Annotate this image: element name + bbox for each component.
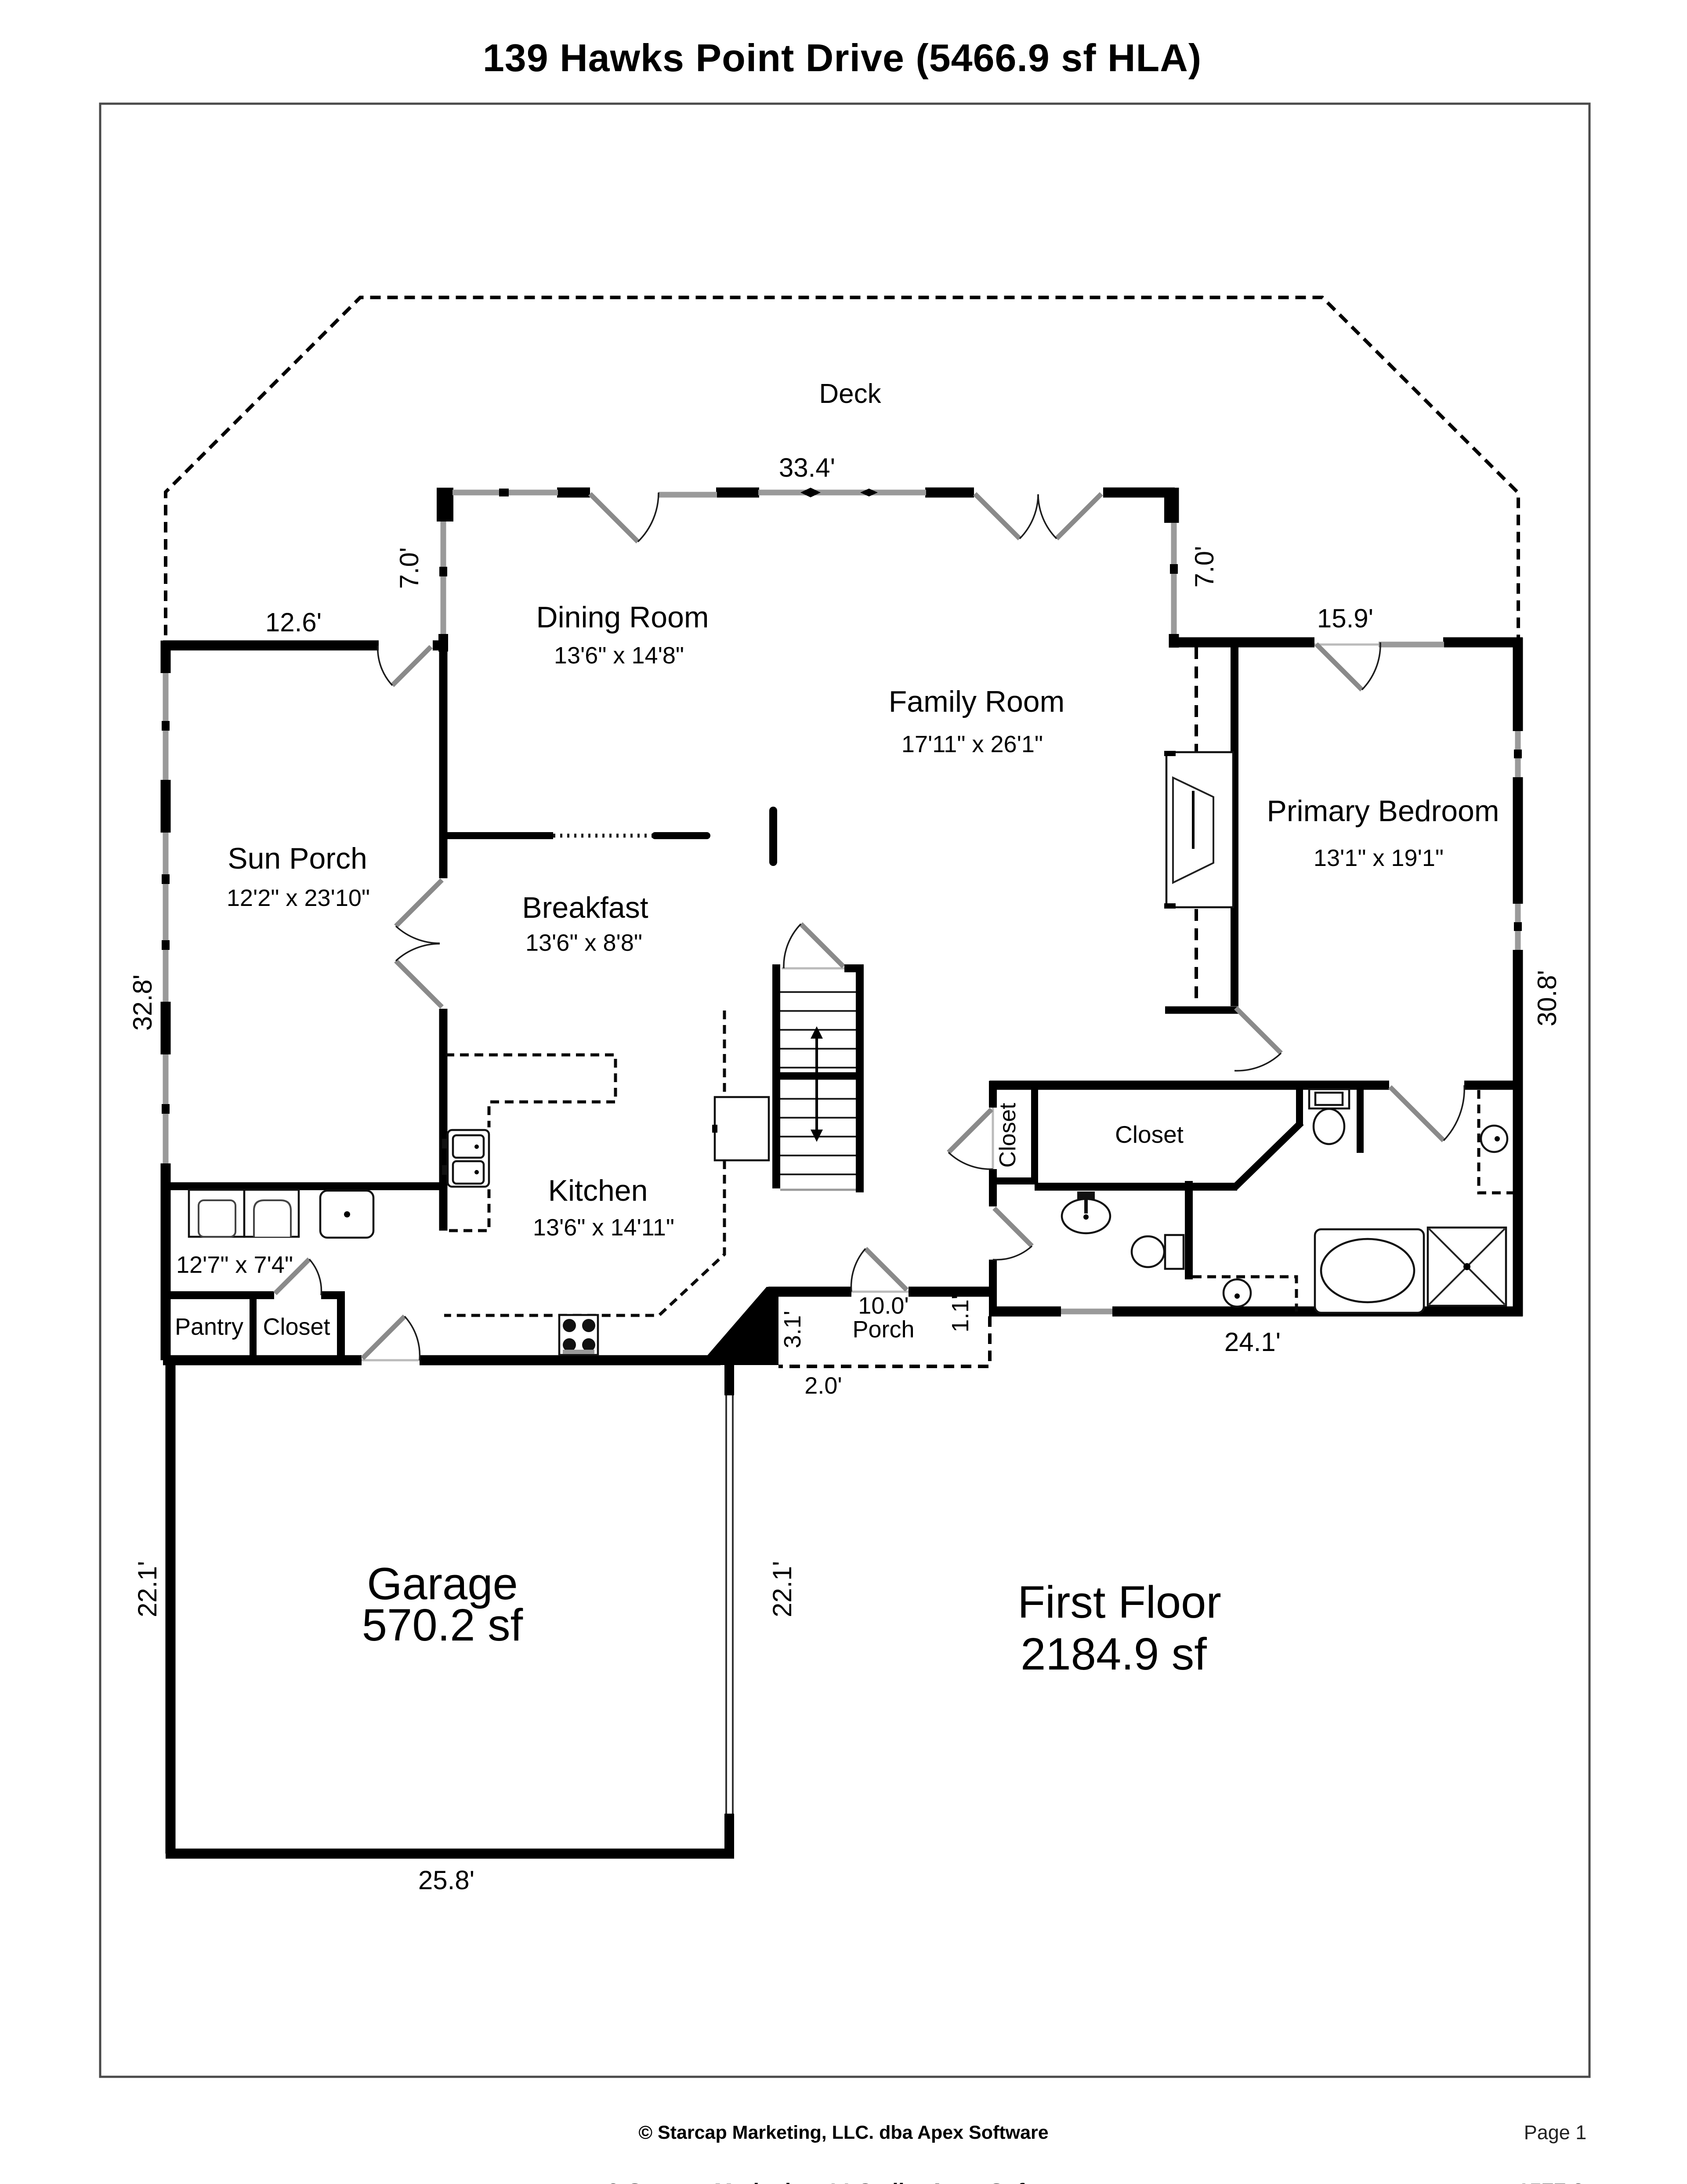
svg-text:7.0': 7.0' [395, 547, 424, 589]
svg-text:33.4': 33.4' [779, 453, 835, 482]
svg-text:Breakfast: Breakfast [522, 891, 648, 924]
svg-text:7.0': 7.0' [1190, 546, 1219, 588]
svg-text:First Floor: First Floor [1017, 1577, 1221, 1627]
svg-text:10.0': 10.0' [858, 1293, 909, 1319]
svg-text:13'6" x 8'8": 13'6" x 8'8" [525, 930, 642, 956]
svg-text:Dining Room: Dining Room [536, 601, 709, 634]
svg-text:22.1': 22.1' [767, 1561, 797, 1617]
svg-text:Kitchen: Kitchen [548, 1174, 648, 1207]
svg-text:© Starcap Marketing, LLC. dba: © Starcap Marketing, LLC. dba Apex Softw… [605, 2179, 1082, 2184]
svg-text:© Starcap Marketing, LLC. dba: © Starcap Marketing, LLC. dba Apex Softw… [638, 2122, 1048, 2143]
svg-text:1.1': 1.1' [947, 1295, 974, 1332]
svg-text:Pantry: Pantry [175, 1314, 243, 1340]
svg-text:Closet: Closet [1115, 1121, 1184, 1148]
svg-text:30.8': 30.8' [1532, 970, 1562, 1026]
svg-text:25.8': 25.8' [418, 1865, 474, 1895]
svg-text:Page 1: Page 1 [1524, 2121, 1587, 2144]
svg-text:13'6" x 14'11": 13'6" x 14'11" [533, 1214, 674, 1241]
svg-text:Closet: Closet [995, 1103, 1021, 1168]
svg-text:13'1" x 19'1": 13'1" x 19'1" [1314, 845, 1444, 871]
svg-text:12'7" x 7'4": 12'7" x 7'4" [176, 1252, 293, 1278]
svg-text:12'2" x 23'10": 12'2" x 23'10" [227, 885, 370, 911]
svg-text:3.1': 3.1' [779, 1311, 806, 1348]
svg-text:Deck: Deck [819, 379, 881, 409]
svg-text:1577.2: 1577.2 [1517, 2179, 1585, 2184]
svg-text:Porch: Porch [852, 1316, 914, 1343]
svg-text:Closet: Closet [263, 1314, 330, 1340]
svg-text:139 Hawks Point Drive (5466.9: 139 Hawks Point Drive (5466.9 sf HLA) [483, 36, 1202, 80]
svg-text:2184.9 sf: 2184.9 sf [1021, 1629, 1207, 1679]
svg-text:24.1': 24.1' [1224, 1327, 1281, 1357]
svg-text:2.0': 2.0' [804, 1373, 842, 1399]
svg-text:32.8': 32.8' [128, 974, 157, 1031]
svg-text:15.9': 15.9' [1317, 604, 1373, 633]
svg-text:Primary Bedroom: Primary Bedroom [1267, 794, 1499, 828]
svg-text:13'6" x 14'8": 13'6" x 14'8" [554, 642, 684, 669]
svg-text:12.6': 12.6' [265, 608, 322, 637]
svg-text:17'11" x 26'1": 17'11" x 26'1" [901, 731, 1043, 757]
svg-text:570.2 sf: 570.2 sf [362, 1600, 523, 1650]
svg-text:Family Room: Family Room [889, 685, 1065, 718]
svg-text:22.1': 22.1' [133, 1561, 162, 1617]
svg-text:Sun Porch: Sun Porch [228, 842, 367, 875]
